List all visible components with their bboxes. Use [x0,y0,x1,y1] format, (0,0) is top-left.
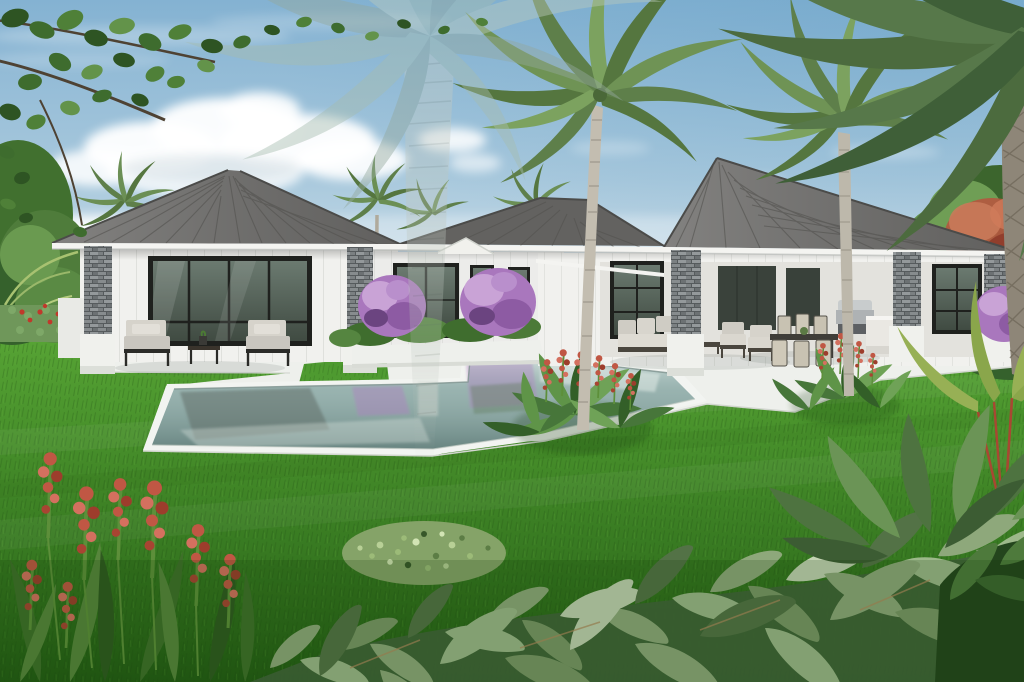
backyard-rendering [0,0,1024,682]
water-reflection-purple [352,386,410,416]
stone-column [671,250,701,336]
foreground-shade [0,560,1024,682]
left-glass-slider [148,256,312,346]
rendering-canvas [0,0,1024,682]
patio-opening [718,266,776,330]
purple-shrub [460,268,536,336]
stone-column [84,246,112,336]
stone-column [893,252,921,328]
